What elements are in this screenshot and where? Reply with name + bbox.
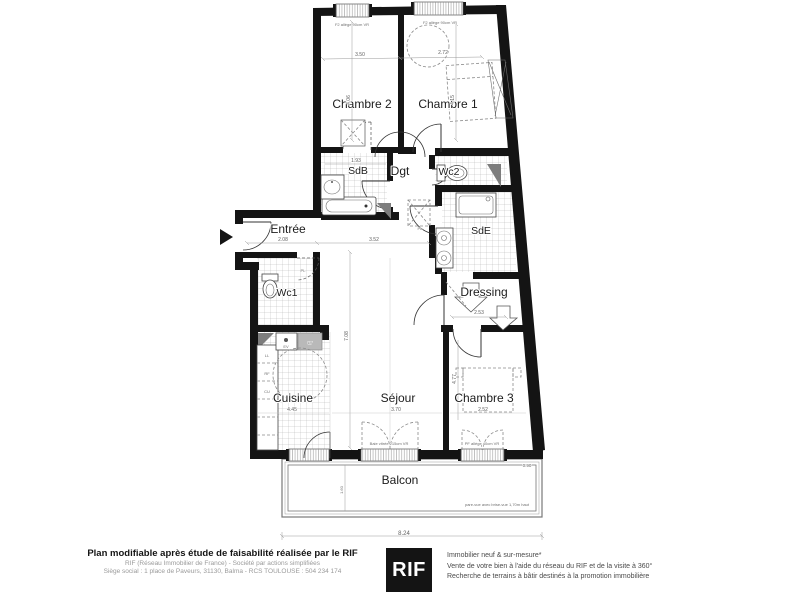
room-label-wc2: Wc2 <box>439 166 460 178</box>
balcony-outer-border <box>282 459 542 517</box>
wall-entree-left-a <box>235 210 243 224</box>
room-label-sdb: SdB <box>348 165 368 177</box>
footer-company-line1: RIF (Réseau Immobilier de France) - Soci… <box>55 560 390 568</box>
dim-chambre1-height: 4.15 <box>450 95 456 105</box>
footer-services-block: Immobilier neuf & sur-mesure* Vente de v… <box>447 551 652 583</box>
wall-wc1-top <box>243 252 297 258</box>
annotation-kitchen-cu: CU <box>264 389 270 394</box>
room-label-balcon: Balcon <box>382 473 419 487</box>
annotation-kitchen-ev: EV <box>283 344 289 349</box>
dim-chambre3-width: 2.52 <box>478 407 488 413</box>
room-label-chambre3: Chambre 3 <box>454 391 514 405</box>
dim-entree-width: 2.08 <box>278 237 288 243</box>
wall-wc2-left-a <box>429 155 435 169</box>
wall-sde-left-a <box>435 192 442 206</box>
annotation-kitchen-lv: LV <box>308 340 313 345</box>
wall-chambre-divider <box>398 12 404 154</box>
annotation-bay-chambre3: PF allège 40cm VR <box>465 441 500 446</box>
room-label-sde: SdE <box>471 225 491 237</box>
annotation-window-chambre1: F2 allège 90cm VR <box>423 20 457 25</box>
dim-sejour-width: 3.70 <box>391 407 401 413</box>
footer-company-line2: Siège social : 1 place de Paveurs, 31130… <box>55 568 390 576</box>
dim-balcon-side: 0.90 <box>523 463 532 468</box>
wall-sde-bottom-a <box>441 272 447 279</box>
footer-service-2: Vente de votre bien à l'aide du réseau d… <box>447 562 652 573</box>
wall-dressing-left <box>441 279 447 295</box>
wall-ch1-wc2 <box>435 148 513 156</box>
wall-wc1-right <box>313 252 320 332</box>
chambre1-bed <box>446 62 496 121</box>
wall-sejour-ch3-divider <box>443 332 449 452</box>
wall-wc1-bottom <box>250 325 320 332</box>
wall-left-upper <box>313 8 321 218</box>
wall-sde-bottom-b <box>473 272 523 279</box>
wall-wc2-bottom <box>435 185 515 192</box>
floor-plan: Chambre 2 Chambre 1 SdB Dgt Wc2 SdE Entr… <box>0 0 800 545</box>
chambre1-door <box>413 124 441 152</box>
dim-balcon-depth: 1.60 <box>339 485 344 494</box>
bay-window-chambre3 <box>458 449 507 461</box>
rif-logo-text: RIF <box>392 559 426 582</box>
dim-sejour-height: 7.08 <box>344 331 350 341</box>
annotation-balcony-note: pare-vue avec brise-vue 1,70m haut <box>465 502 530 507</box>
dim-corridor-width: 3.52 <box>369 237 379 243</box>
bay-window-sejour <box>358 449 421 461</box>
room-label-dgt: Dgt <box>391 164 410 178</box>
room-label-chambre1: Chambre 1 <box>418 97 478 111</box>
room-label-wc1: Wc1 <box>277 287 298 299</box>
room-label-sejour: Séjour <box>381 391 416 405</box>
dim-dressing-width: 2.53 <box>474 310 484 316</box>
dim-chambre1-width: 2.72 <box>438 50 448 56</box>
dim-cuisine-height: 4.45 <box>287 407 297 413</box>
floor-plan-page: Chambre 2 Chambre 1 SdB Dgt Wc2 SdE Entr… <box>0 0 800 600</box>
room-label-chambre2: Chambre 2 <box>332 97 392 111</box>
sde-double-washbasin <box>436 228 453 268</box>
shower <box>456 193 496 217</box>
wall-ch1-bottom-a <box>404 147 416 154</box>
dim-chambre2-width: 3.50 <box>355 52 365 58</box>
window-chambre2 <box>333 4 372 17</box>
footer-service-1: Immobilier neuf & sur-mesure* <box>447 551 652 562</box>
wall-ch3-top-a <box>441 325 453 332</box>
room-label-cuisine: Cuisine <box>273 391 313 405</box>
footer-title: Plan modifiable après étude de faisabili… <box>55 548 390 560</box>
chambre3-door <box>453 329 481 357</box>
rif-logo: RIF <box>386 548 432 592</box>
window-chambre1 <box>411 2 466 15</box>
window-cuisine <box>286 449 332 461</box>
dgt-placard <box>408 200 430 226</box>
dim-sdb-width: 1.93 <box>351 158 361 164</box>
room-label-entree: Entrée <box>270 222 306 236</box>
chambre1-round-furniture <box>407 25 449 67</box>
annotation-bay-sejour: Baie vitrée 215cm VR <box>370 441 409 446</box>
chambre3-bed <box>456 368 521 412</box>
sdb-washbasin <box>321 175 344 199</box>
annotation-placard-wc1: PL <box>301 268 307 273</box>
chambre3-bay-doors <box>462 430 503 450</box>
chambre2-closet <box>341 120 365 146</box>
dim-balcon-width: 8.24 <box>398 531 410 537</box>
entrance-arrow-icon <box>220 229 233 245</box>
annotation-kitchen-ll: LL <box>265 353 270 358</box>
wall-sdb-top-a <box>321 147 343 153</box>
balcony <box>282 459 542 517</box>
room-label-dressing: Dressing <box>460 285 507 299</box>
dim-chambre2-height: 4.06 <box>346 95 352 105</box>
entree-door <box>243 222 271 250</box>
annotation-window-chambre2: F2 allège 90cm VR <box>335 22 369 27</box>
dressing-door <box>414 295 444 325</box>
wall-entree-top <box>235 210 321 218</box>
bathtub <box>322 197 376 215</box>
footer-service-3: Recherche de terrains à bâtir destinés à… <box>447 572 652 583</box>
dim-chambre3-height: 4.77 <box>452 374 458 384</box>
footer-left-block: Plan modifiable après étude de faisabili… <box>55 548 390 576</box>
annotation-placard-dgt: PL <box>418 226 424 231</box>
annotation-kitchen-rf: RF <box>264 371 270 376</box>
wall-dgt-sejour-stub <box>429 225 435 258</box>
